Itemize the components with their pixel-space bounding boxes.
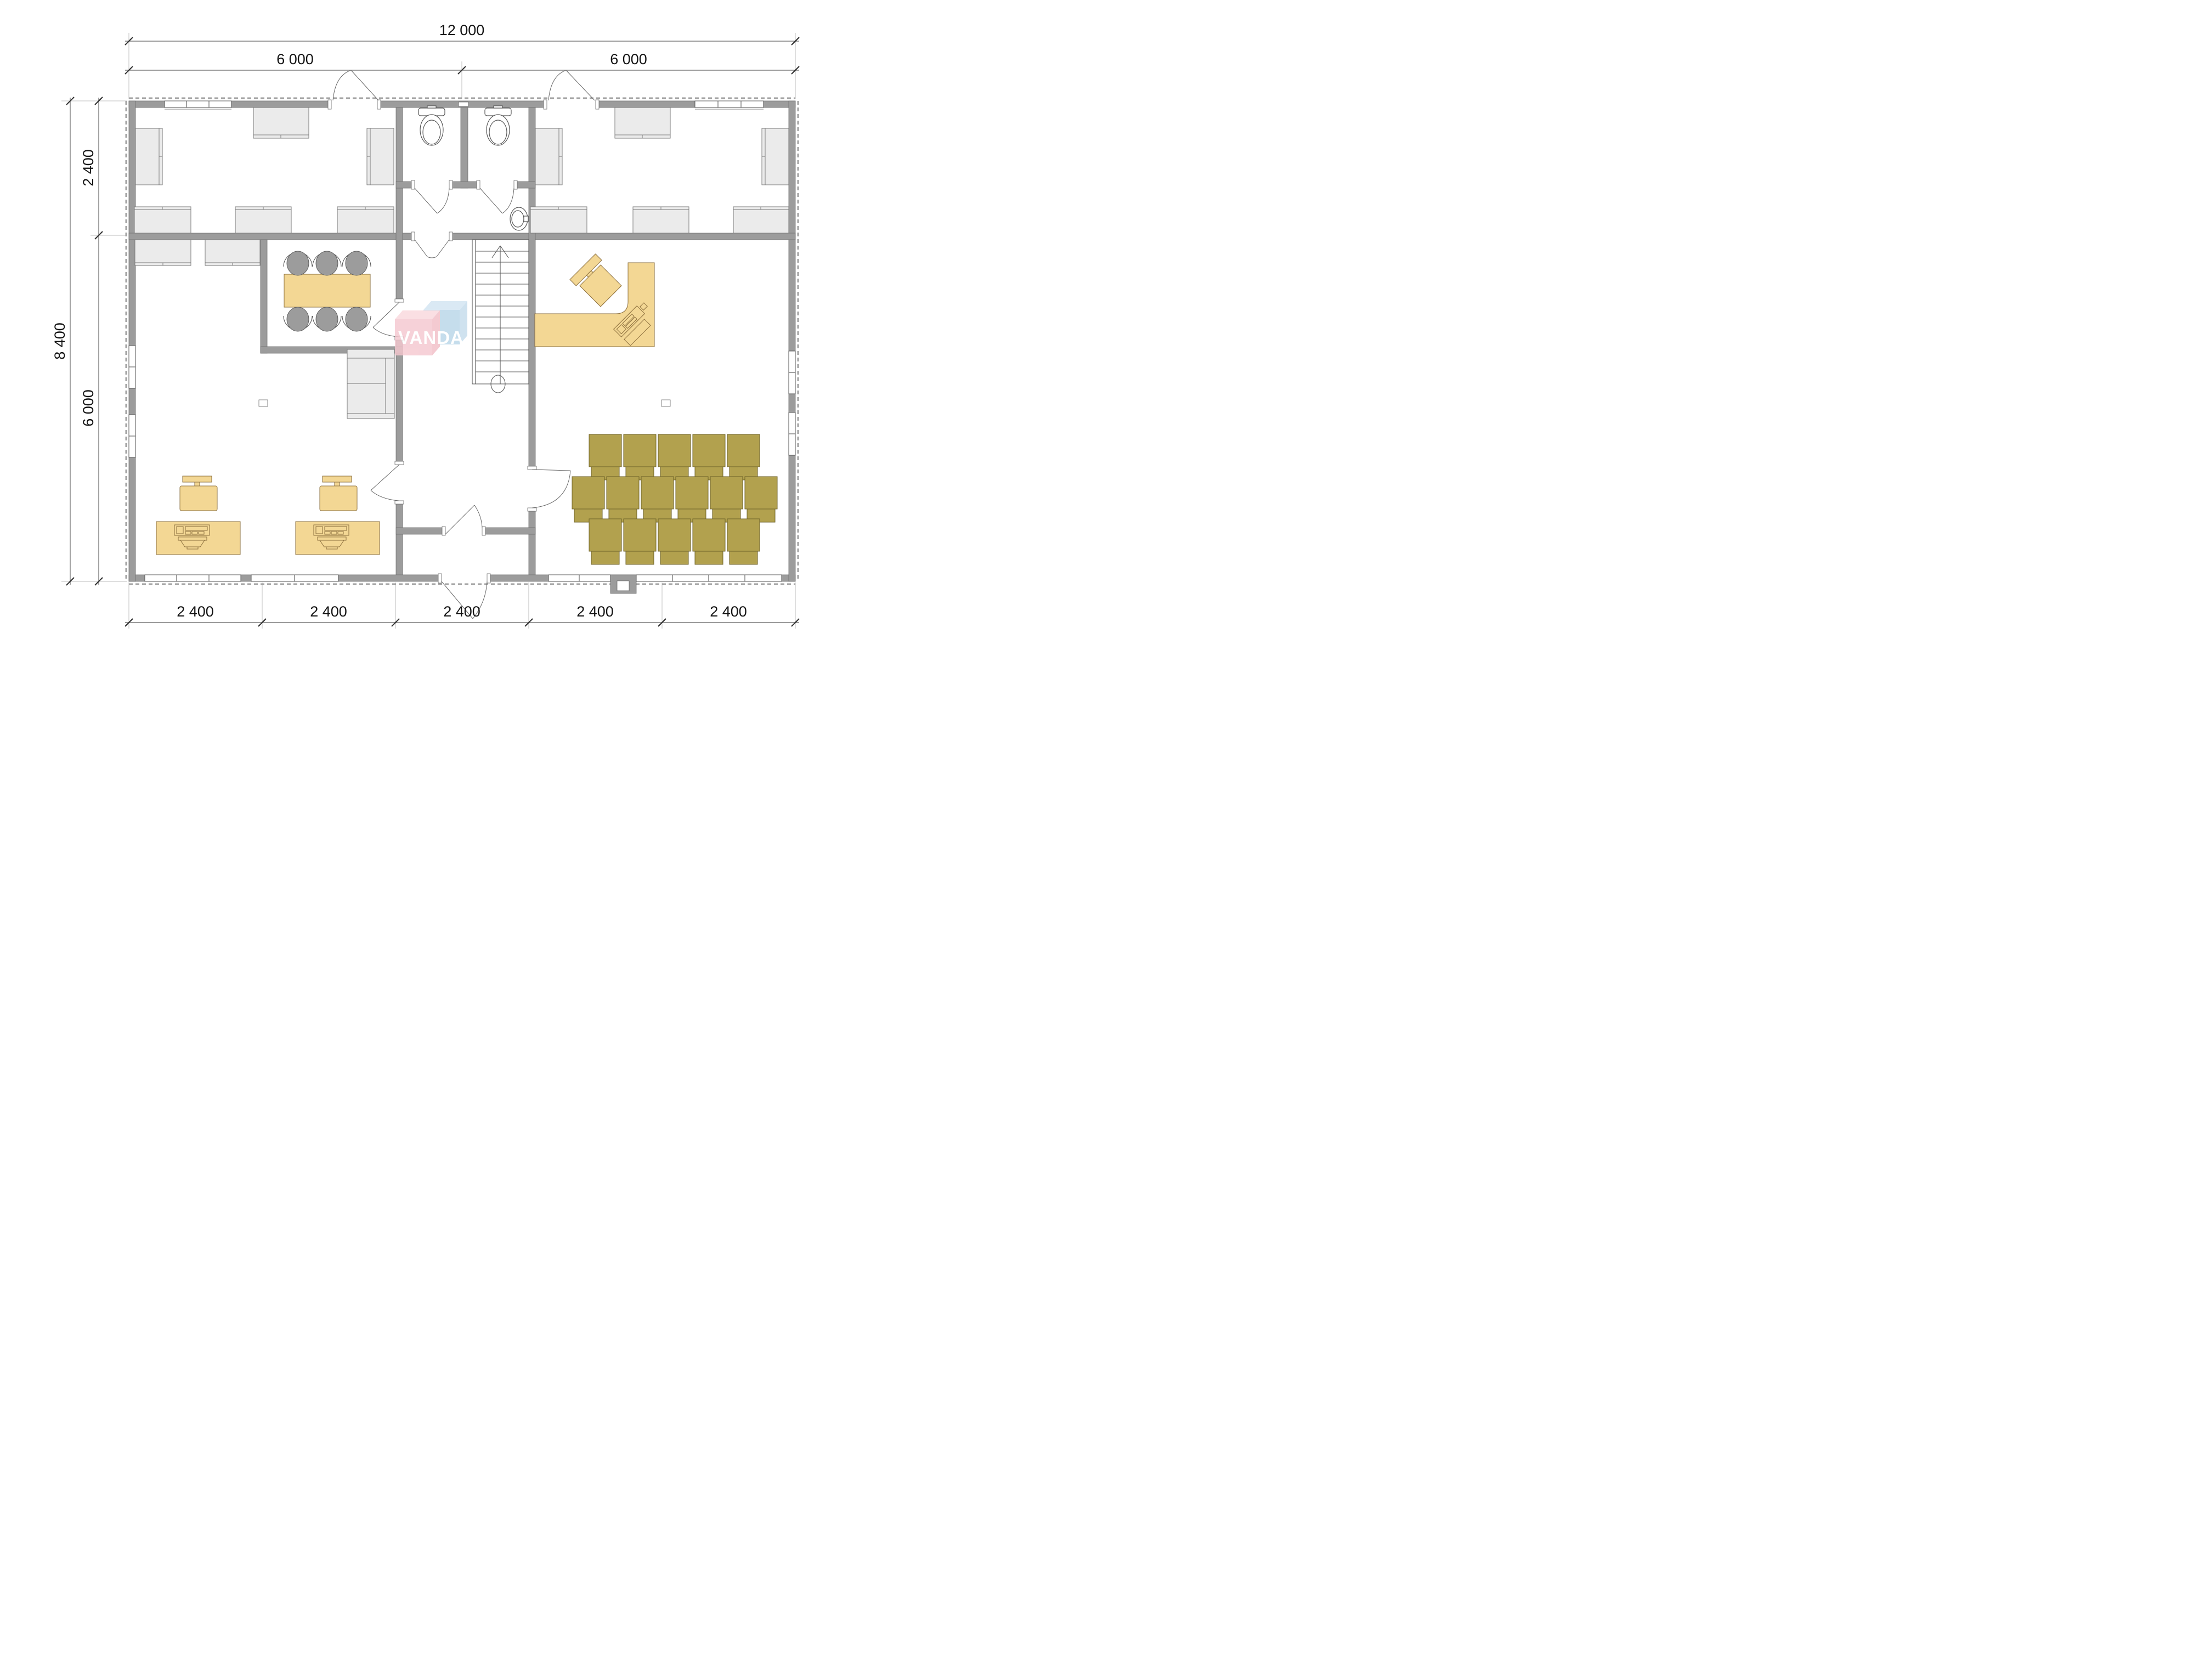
window-top-left (165, 101, 231, 109)
office-top-right (530, 108, 789, 233)
storage-cabinet (347, 349, 394, 418)
floor-marker-left (259, 400, 268, 406)
reception-desk (535, 254, 654, 347)
meeting-chair (313, 307, 341, 331)
wc-door-right (480, 188, 514, 213)
dim-left-total: 8 400 (52, 323, 68, 360)
top-wall-niche (459, 102, 468, 106)
sanitary-fixtures (419, 106, 528, 230)
desk (615, 108, 670, 138)
meeting-chair (342, 251, 371, 275)
watermark-text: VANDA (398, 327, 464, 348)
toilet-left-icon (419, 106, 445, 145)
dim-top-left-half: 6 000 (276, 51, 314, 67)
hall-to-right-room-door (532, 470, 570, 508)
window-right-2 (789, 412, 795, 455)
entry-door-top-right (548, 70, 595, 100)
desk (535, 128, 562, 185)
dim-left-lower: 6 000 (80, 389, 97, 427)
meeting-chair (284, 251, 312, 275)
window-left-2 (129, 415, 135, 457)
room-right (535, 254, 777, 564)
desk (762, 128, 789, 185)
dim-bottom-1: 2 400 (177, 603, 214, 620)
exterior-pier-notch (617, 581, 629, 591)
dim-bottom-3: 2 400 (443, 603, 480, 620)
meeting-chair (284, 307, 312, 331)
vestibule-double-door (415, 240, 449, 258)
desk (135, 128, 162, 185)
desk (253, 108, 309, 138)
workstation (156, 476, 240, 555)
desk (134, 207, 191, 233)
watermark-logo: VANDA (395, 301, 467, 355)
desk (733, 207, 789, 233)
meeting-room-wall-left (261, 240, 267, 353)
toilet-right-icon (485, 106, 511, 145)
wash-basin-icon (510, 207, 528, 230)
chair-seat (180, 486, 217, 511)
meeting-room (284, 251, 371, 331)
floor-marker-right (661, 400, 670, 406)
hall-to-left-room-door (371, 465, 399, 501)
window-bottom-3 (548, 575, 610, 581)
window-bottom-4 (636, 575, 782, 581)
dim-left-upper: 2 400 (80, 149, 97, 186)
window-bottom-1 (145, 575, 241, 581)
floor-plan-drawing: VANDA 12 000 6 000 6 000 8 400 2 400 6 0… (0, 0, 860, 658)
window-left-1 (129, 346, 135, 388)
entry-door-top-left (333, 70, 378, 100)
audience-chair-row-2 (572, 477, 777, 522)
wc-divider-wall (461, 108, 468, 188)
window-top-right (695, 101, 764, 109)
office-top-left (134, 108, 394, 233)
desk (337, 207, 394, 233)
meeting-chair (313, 251, 341, 275)
dim-bottom-5: 2 400 (710, 603, 747, 620)
wc-door-left (415, 188, 449, 213)
exterior-wall-left (129, 101, 135, 581)
desk (135, 240, 191, 265)
staircase-up (472, 240, 529, 393)
meeting-table (284, 274, 370, 307)
dim-bottom-2: 2 400 (310, 603, 347, 620)
chair-back (323, 476, 352, 482)
floor-plan-canvas: VANDA 12 000 6 000 6 000 8 400 2 400 6 0… (0, 0, 860, 658)
dim-top-right-half: 6 000 (610, 51, 647, 67)
partition-band-wall (129, 233, 795, 240)
audience-chair-row-1 (589, 434, 760, 480)
window-right-1 (789, 351, 795, 394)
desk (205, 240, 260, 265)
chair-back (183, 476, 212, 482)
meeting-chair (342, 307, 371, 331)
window-bottom-2 (251, 575, 338, 581)
desk (633, 207, 689, 233)
watermark-pink-cube-top (395, 310, 440, 319)
desk (235, 207, 291, 233)
desk (530, 207, 587, 233)
desk (367, 128, 394, 185)
watermark-blue-cube-top (423, 301, 467, 310)
dim-top-total: 12 000 (439, 22, 485, 38)
dim-bottom-4: 2 400 (576, 603, 614, 620)
workstation (296, 476, 380, 555)
chair-seat (320, 486, 357, 511)
exterior-wall-right (789, 101, 795, 581)
audience-chair-row-3 (589, 519, 760, 564)
